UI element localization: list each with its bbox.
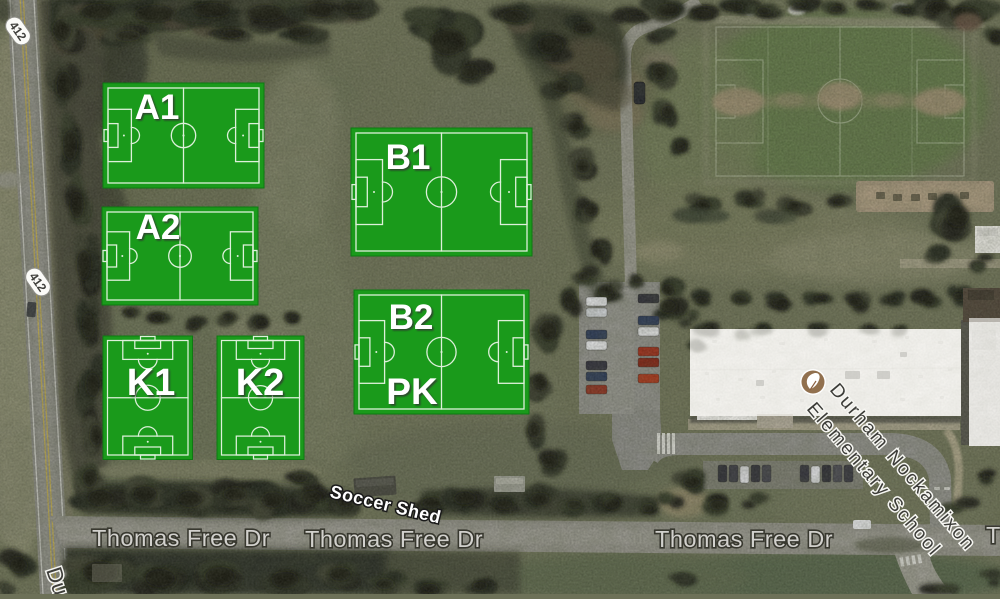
svg-text:Thomas Free Dr: Thomas Free Dr [655, 526, 833, 552]
svg-text:Th: Th [986, 522, 1000, 548]
svg-text:A2: A2 [136, 208, 181, 247]
svg-text:A1: A1 [135, 88, 180, 127]
svg-text:PK: PK [386, 371, 438, 412]
svg-text:K2: K2 [236, 362, 285, 404]
svg-text:K1: K1 [127, 362, 176, 404]
svg-text:Thomas Free Dr: Thomas Free Dr [305, 526, 483, 552]
svg-text:Thomas Free Dr: Thomas Free Dr [92, 525, 270, 551]
svg-text:B2: B2 [389, 298, 434, 337]
svg-text:B1: B1 [386, 138, 431, 177]
